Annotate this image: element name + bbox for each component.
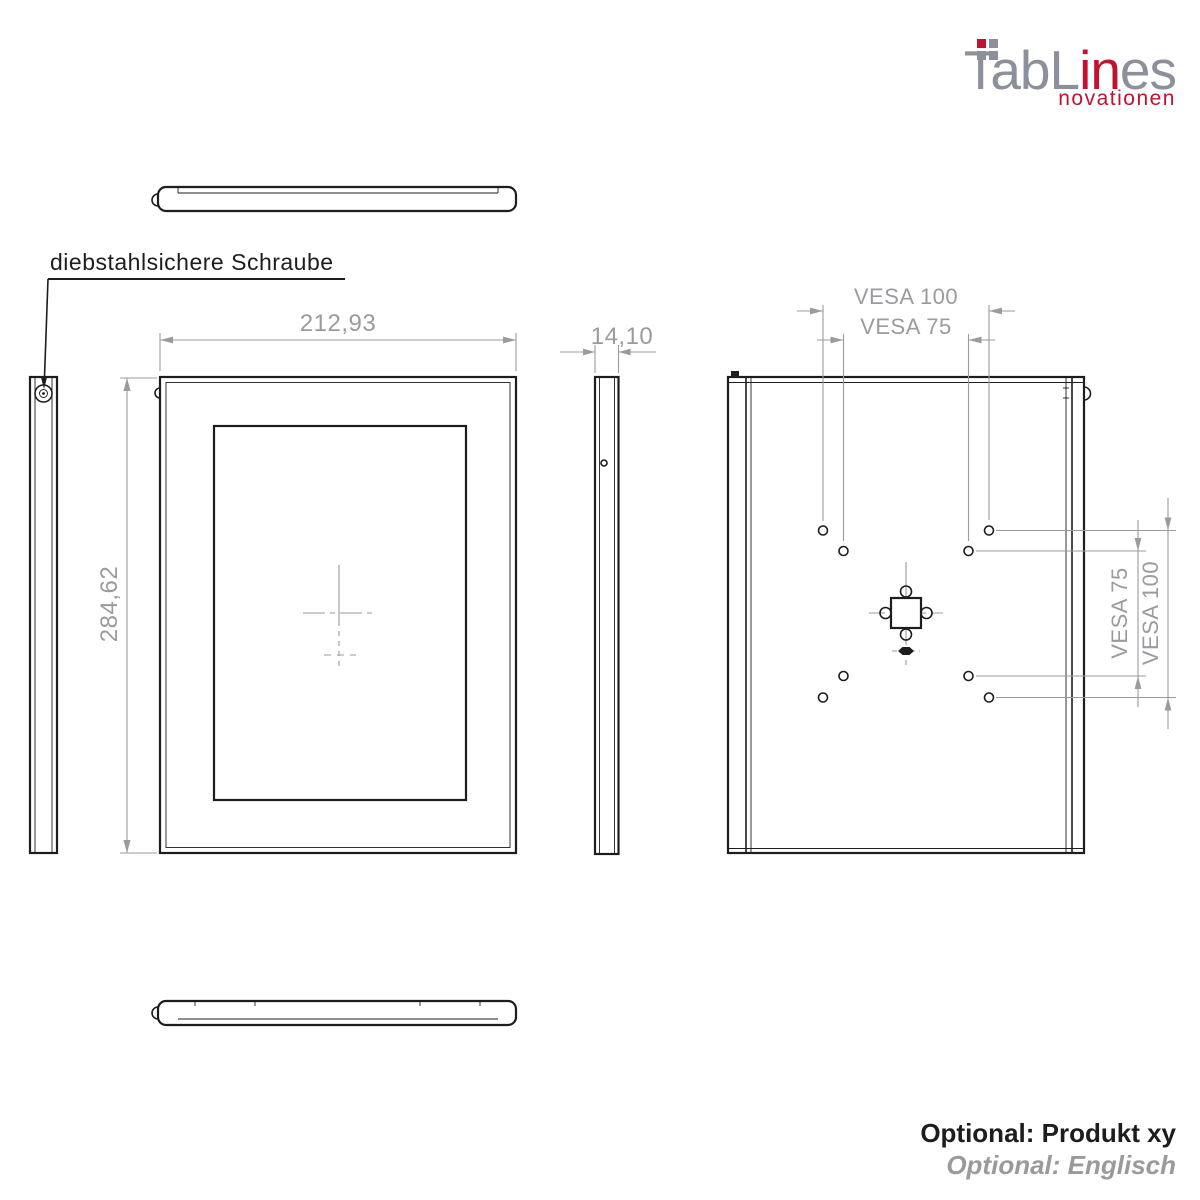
footer-option-product: Optional: Produkt xy	[920, 1118, 1176, 1148]
dimension-width-value: 212,93	[300, 310, 376, 337]
left-side-view	[30, 377, 57, 853]
screw-center-dot	[42, 392, 45, 395]
bottom-view	[152, 1001, 516, 1025]
footer-option-language: Optional: Englisch	[946, 1150, 1176, 1180]
arrowhead	[123, 840, 130, 853]
back-view	[728, 371, 1091, 853]
arrowhead	[1165, 518, 1172, 531]
technical-drawing-canvas: 212,93 14,10 284,62 VESA 100 VESA 75	[0, 0, 1200, 1200]
arrowhead	[831, 337, 844, 344]
vesa100-right-label: VESA 100	[1138, 561, 1163, 665]
screw-callout-label: diebstahlsichere Schraube	[50, 249, 334, 275]
dimension-depth-value: 14,10	[591, 323, 654, 350]
front-view	[155, 377, 516, 853]
left-side-outline	[30, 377, 57, 853]
arrowhead	[503, 337, 516, 344]
arrowhead	[989, 308, 1002, 315]
dimension-depth: 14,10	[560, 323, 656, 373]
leader-line	[45, 279, 49, 377]
brand-logo: TabLines novationen	[964, 39, 1176, 110]
arrowhead	[1135, 538, 1142, 551]
arrowhead	[1135, 676, 1142, 689]
vesa75-right-label: VESA 75	[1107, 567, 1132, 659]
top-view-outline	[158, 187, 516, 211]
footer-options: Optional: Produkt xy Optional: Englisch	[920, 1118, 1176, 1180]
arrowhead	[160, 337, 173, 344]
arrowhead	[810, 308, 823, 315]
side-view-outline	[595, 377, 619, 854]
side-view	[595, 377, 619, 854]
arrowhead	[1165, 698, 1172, 711]
dimension-height-value: 284,62	[96, 566, 123, 642]
logo-tagline: novationen	[1058, 87, 1176, 110]
vesa75-top-label: VESA 75	[860, 314, 952, 339]
square-cutout	[891, 598, 921, 628]
arrowhead	[123, 378, 130, 391]
dimension-height: 284,62	[96, 378, 157, 853]
vesa100-top-label: VESA 100	[854, 284, 958, 309]
dimension-width: 212,93	[160, 310, 516, 371]
top-view	[152, 187, 516, 211]
bottom-view-outline	[158, 1001, 516, 1025]
arrowhead	[969, 337, 982, 344]
